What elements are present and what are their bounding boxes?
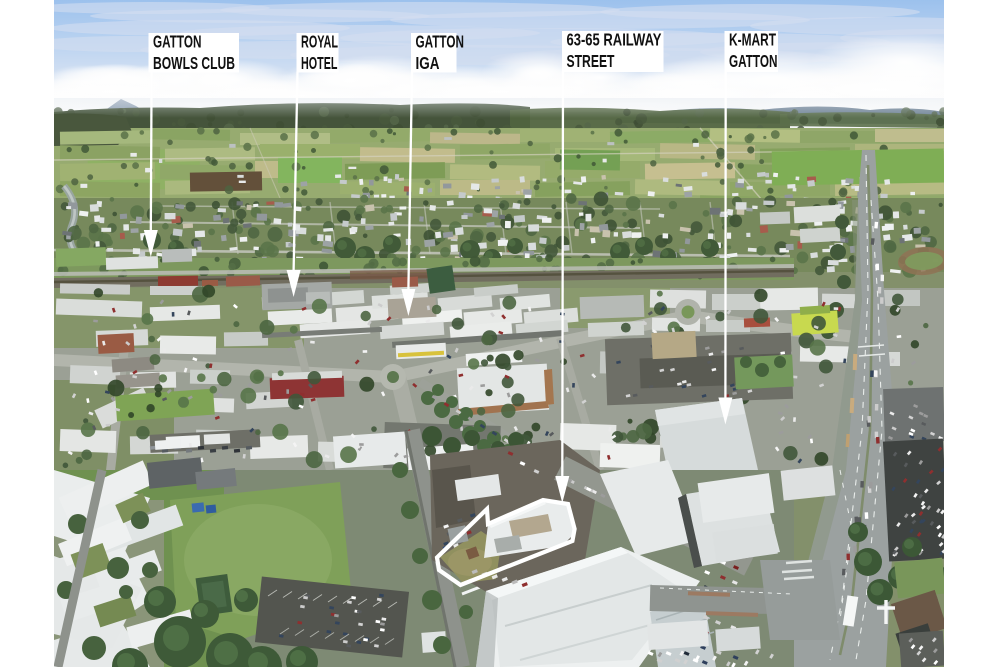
svg-text:HOTEL: HOTEL	[301, 53, 338, 73]
svg-text:IGA: IGA	[416, 53, 440, 73]
svg-text:63-65 RAILWAY: 63-65 RAILWAY	[567, 30, 662, 50]
svg-text:STREET: STREET	[567, 51, 615, 71]
svg-text:GATTON: GATTON	[729, 51, 778, 71]
svg-text:GATTON: GATTON	[153, 32, 202, 52]
svg-text:ROYAL: ROYAL	[301, 32, 338, 52]
svg-text:K-MART: K-MART	[729, 30, 776, 50]
svg-text:GATTON: GATTON	[416, 32, 465, 52]
svg-text:BOWLS CLUB: BOWLS CLUB	[153, 53, 235, 73]
